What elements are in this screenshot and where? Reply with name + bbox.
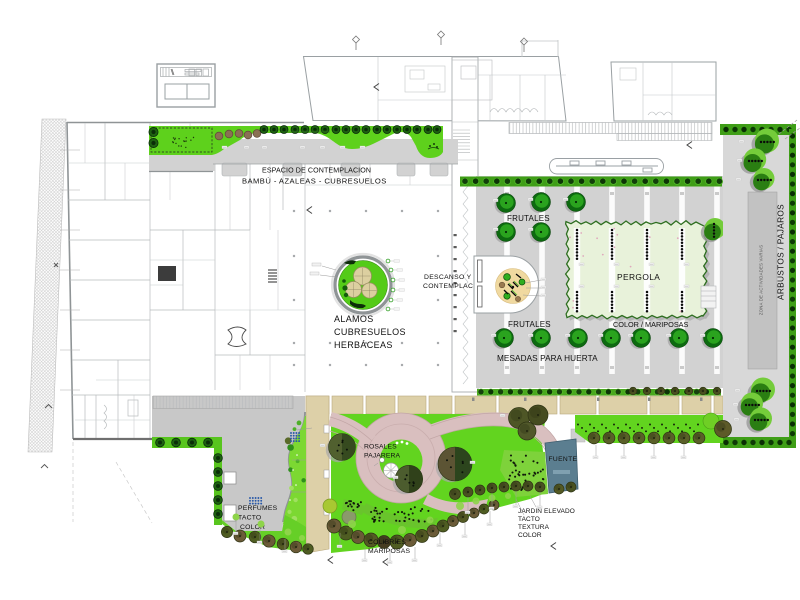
svg-text:PERFUMES: PERFUMES: [238, 505, 278, 512]
svg-text:ZONA DE ACTIVIDADES VARIAS: ZONA DE ACTIVIDADES VARIAS: [759, 245, 764, 315]
svg-text:JARDIN ELEVADO: JARDIN ELEVADO: [518, 508, 575, 515]
svg-text:BAMBÚ - AZALEAS - CUBRESUELOS: BAMBÚ - AZALEAS - CUBRESUELOS: [242, 177, 387, 186]
svg-text:MESADAS PARA HUERTA: MESADAS PARA HUERTA: [497, 354, 598, 363]
svg-text:COLOR: COLOR: [518, 532, 542, 539]
svg-text:CUBRESUELOS: CUBRESUELOS: [334, 327, 406, 337]
svg-text:PAJARERA: PAJARERA: [364, 453, 401, 460]
svg-text:FRUTALES: FRUTALES: [507, 214, 550, 223]
svg-text:FUENTE: FUENTE: [549, 456, 578, 463]
svg-text:HERBÁCEAS: HERBÁCEAS: [334, 340, 393, 350]
svg-text:ROSALES: ROSALES: [364, 444, 397, 451]
svg-text:PERGOLA: PERGOLA: [617, 272, 660, 282]
svg-text:DESCANSO Y: DESCANSO Y: [424, 274, 472, 281]
svg-text:MARIPOSAS: MARIPOSAS: [368, 548, 410, 555]
svg-text:TACTO: TACTO: [238, 515, 261, 522]
svg-text:TACTO: TACTO: [518, 516, 540, 523]
svg-text:TEXTURA: TEXTURA: [518, 524, 550, 531]
svg-text:FRUTALES: FRUTALES: [508, 320, 551, 329]
svg-text:COLIBRÍES: COLIBRÍES: [368, 537, 406, 546]
svg-text:ALAMOS: ALAMOS: [334, 314, 374, 324]
svg-text:ESPACIO DE CONTEMPLACION: ESPACIO DE CONTEMPLACION: [262, 167, 371, 175]
svg-text:ARBUSTOS / PAJAROS: ARBUSTOS / PAJAROS: [776, 204, 786, 300]
svg-text:COLOR / MARIPOSAS: COLOR / MARIPOSAS: [613, 320, 689, 329]
